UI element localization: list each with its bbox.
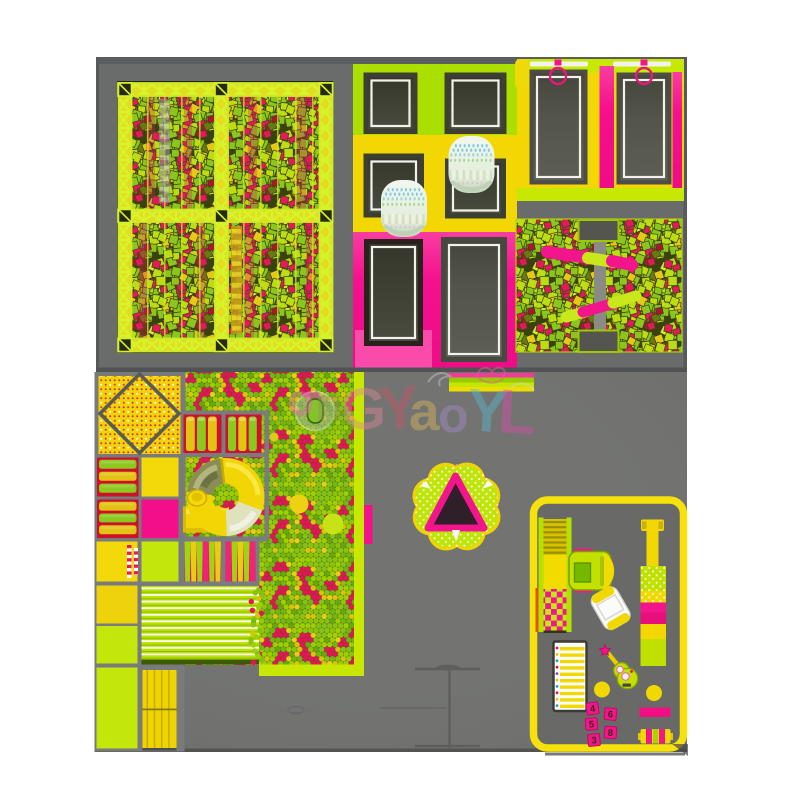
svg-text:o: o xyxy=(285,375,315,426)
svg-text:6: 6 xyxy=(607,709,613,720)
svg-text:3: 3 xyxy=(591,735,597,746)
svg-text:a: a xyxy=(409,380,440,442)
svg-text:8: 8 xyxy=(607,728,613,739)
svg-text:o: o xyxy=(438,387,469,443)
svg-text:n: n xyxy=(315,378,343,430)
